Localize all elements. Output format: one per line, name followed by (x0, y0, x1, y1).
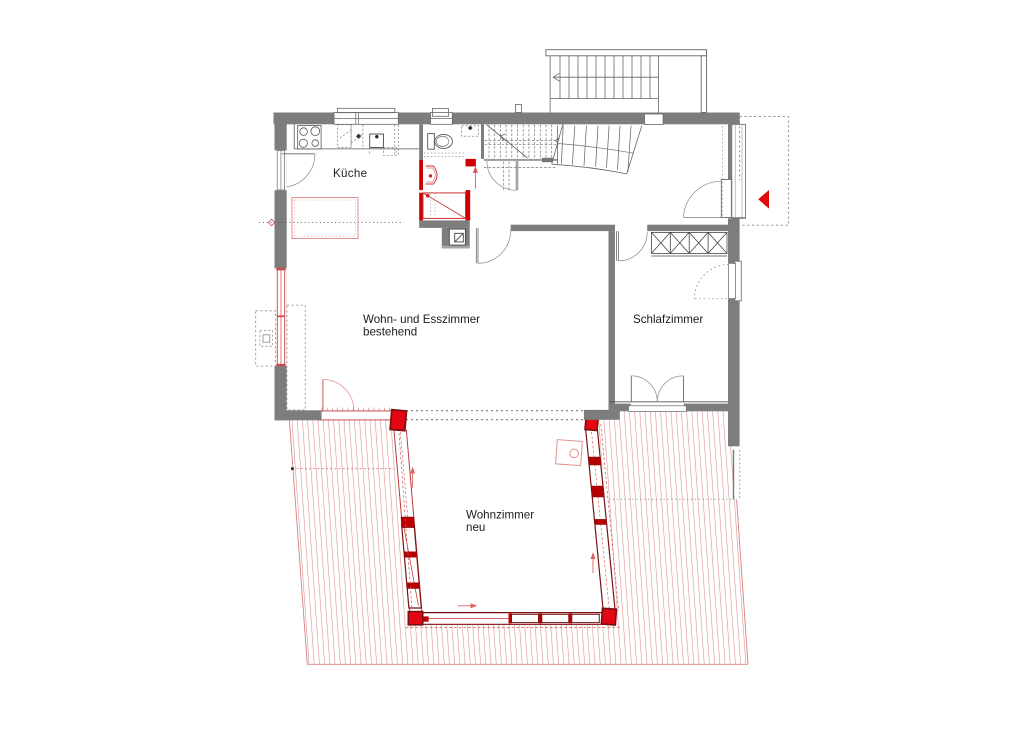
svg-text:Wohn- und Esszimmer: Wohn- und Esszimmer (363, 313, 480, 326)
svg-text:Wohnzimmer: Wohnzimmer (466, 509, 534, 522)
svg-text:neu: neu (466, 521, 485, 534)
svg-text:bestehend: bestehend (363, 326, 417, 339)
svg-text:Küche: Küche (333, 167, 367, 180)
svg-text:Schlafzimmer: Schlafzimmer (633, 313, 703, 326)
